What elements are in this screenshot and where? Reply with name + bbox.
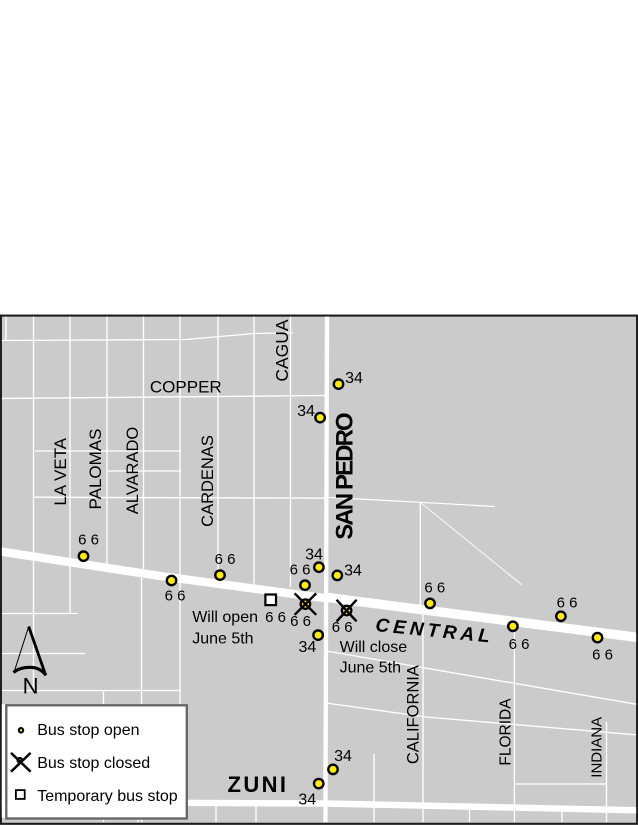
svg-text:CAGUA: CAGUA [272,319,292,382]
svg-text:June 5th: June 5th [192,630,253,647]
svg-text:34: 34 [297,403,315,420]
svg-text:LA VETA: LA VETA [51,437,70,505]
svg-text:Temporary bus stop: Temporary bus stop [37,788,178,805]
svg-text:Will open: Will open [192,609,258,626]
svg-text:6 6: 6 6 [290,561,311,578]
svg-text:INDIANA: INDIANA [589,717,606,778]
svg-text:34: 34 [298,792,316,809]
svg-text:6 6: 6 6 [165,587,186,604]
svg-text:Bus stop closed: Bus stop closed [37,755,150,772]
svg-text:6 6: 6 6 [290,613,311,630]
svg-text:6 6: 6 6 [265,609,286,626]
svg-text:COPPER: COPPER [150,377,222,396]
svg-text:6 6: 6 6 [332,619,353,636]
svg-text:Bus stop open: Bus stop open [37,722,139,739]
svg-text:6 6: 6 6 [78,532,99,549]
svg-text:June 5th: June 5th [340,660,401,677]
svg-text:6 6: 6 6 [592,647,613,664]
svg-text:6 6: 6 6 [215,551,236,568]
svg-text:CARDENAS: CARDENAS [199,435,217,527]
svg-text:6 6: 6 6 [509,636,530,653]
svg-text:34: 34 [334,748,352,765]
svg-text:6 6: 6 6 [557,594,578,611]
svg-text:CALIFORNIA: CALIFORNIA [405,665,423,764]
svg-text:N: N [23,674,39,699]
svg-text:34: 34 [344,563,362,580]
svg-text:Will close: Will close [340,639,408,656]
svg-text:ALVARADO: ALVARADO [124,427,142,515]
svg-text:34: 34 [345,370,363,387]
svg-text:PALOMAS: PALOMAS [86,429,105,510]
svg-text:ZUNI: ZUNI [228,772,289,797]
svg-text:34: 34 [299,639,317,656]
svg-text:6 6: 6 6 [424,579,445,596]
svg-text:SAN PEDRO: SAN PEDRO [332,413,359,540]
svg-text:FLORIDA: FLORIDA [498,698,515,766]
